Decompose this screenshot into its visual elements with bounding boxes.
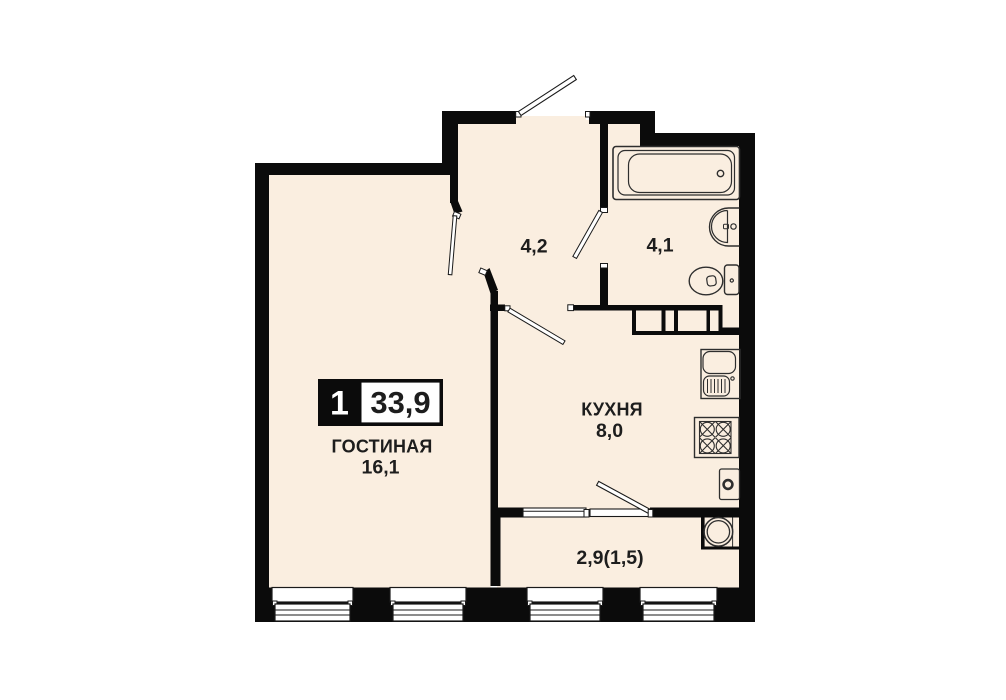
svg-text:4,2: 4,2: [520, 236, 547, 258]
svg-text:16,1: 16,1: [362, 457, 400, 479]
svg-text:КУХНЯ: КУХНЯ: [581, 400, 643, 420]
svg-text:33,9: 33,9: [370, 385, 430, 420]
svg-text:4,1: 4,1: [646, 235, 673, 257]
svg-text:8,0: 8,0: [596, 420, 623, 442]
svg-text:ГОСТИНАЯ: ГОСТИНАЯ: [332, 437, 433, 457]
svg-text:2,9(1,5): 2,9(1,5): [576, 547, 643, 569]
svg-text:1: 1: [330, 385, 349, 423]
